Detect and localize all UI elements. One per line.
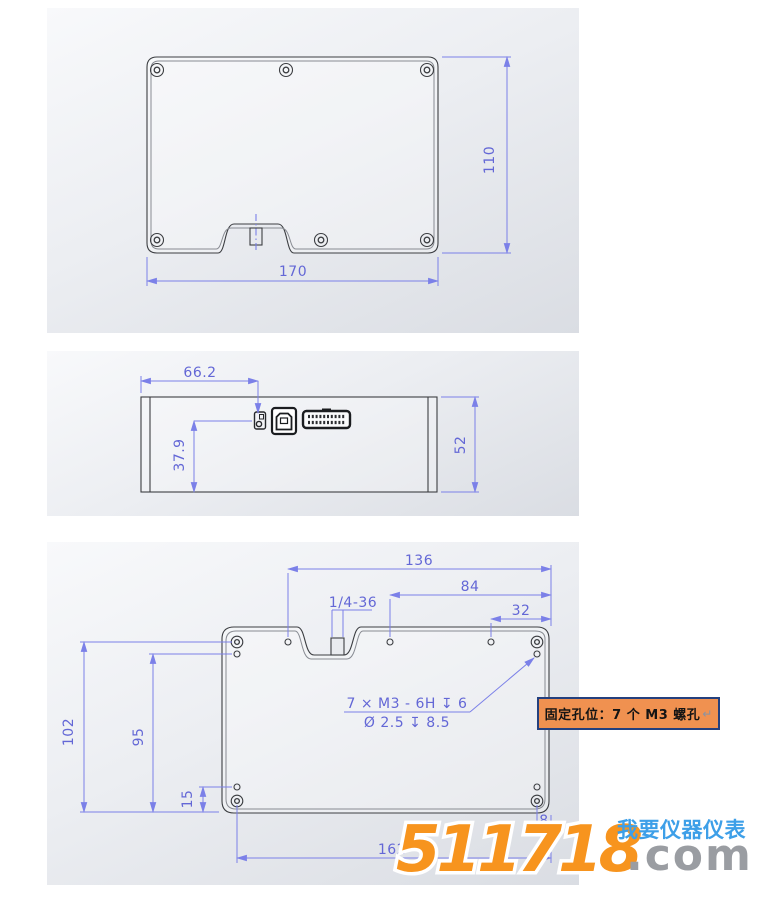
- side-view-drawing: 66.2 37.9 52: [47, 351, 579, 516]
- dimension-95: [149, 654, 232, 812]
- dim-84-label: 84: [461, 579, 480, 595]
- plate-outline-outer: [147, 57, 438, 253]
- top-view-plate: [147, 57, 438, 253]
- usb-b-port-icon: [272, 408, 296, 434]
- fixed-holes-callout: 固定孔位：7 个 M3 螺孔 ↵: [537, 697, 720, 730]
- watermark-tld-fill: .com: [626, 830, 753, 881]
- dimension-110: [442, 57, 511, 253]
- dim-162-label: 162: [378, 842, 406, 858]
- dim-37-9-label: 37.9: [172, 438, 188, 471]
- dim-8-label: 8: [539, 813, 548, 829]
- watermark-slogan: 我要仪器仪表 我要仪器仪表: [617, 820, 746, 841]
- hole-note-line2: Ø 2.5 ↧ 8.5: [364, 715, 450, 731]
- dim-52-label: 52: [453, 436, 469, 455]
- drawing-page: 170 110: [0, 0, 767, 905]
- dim-15-label: 15: [180, 790, 196, 809]
- return-mark-icon: ↵: [702, 707, 712, 721]
- dim-170-label: 170: [279, 264, 307, 280]
- top-view-drawing: 170 110: [47, 8, 579, 333]
- top-view-panel: 170 110: [47, 8, 579, 333]
- watermark-slogan-fill: 我要仪器仪表: [617, 818, 746, 842]
- dim-110-label: 110: [482, 146, 498, 174]
- dim-32-label: 32: [512, 603, 531, 619]
- pin-header-port-icon: [303, 409, 350, 429]
- dim-95-label: 95: [131, 728, 147, 747]
- thread-label: 1/4-36: [329, 595, 377, 611]
- bottom-view-panel: 136 84 32 1/4-36 102: [47, 542, 579, 885]
- thread-tab: [331, 638, 344, 655]
- dimension-136: [288, 565, 551, 637]
- dim-102-label: 102: [61, 718, 77, 746]
- hole-note-line1: 7 × M3 - 6H ↧ 6: [347, 696, 468, 712]
- dim-66-2-label: 66.2: [183, 365, 216, 381]
- watermark-slogan-outline: 我要仪器仪表: [617, 820, 746, 841]
- side-view-panel: 66.2 37.9 52: [47, 351, 579, 516]
- dim-136-label: 136: [405, 553, 433, 569]
- callout-text: 固定孔位：7 个 M3 螺孔: [545, 704, 701, 723]
- small-connector-icon: [255, 412, 266, 429]
- watermark-tld: .com .com: [626, 834, 753, 878]
- bottom-view-drawing: 136 84 32 1/4-36 102: [47, 542, 579, 885]
- watermark-tld-outline: .com: [626, 834, 753, 878]
